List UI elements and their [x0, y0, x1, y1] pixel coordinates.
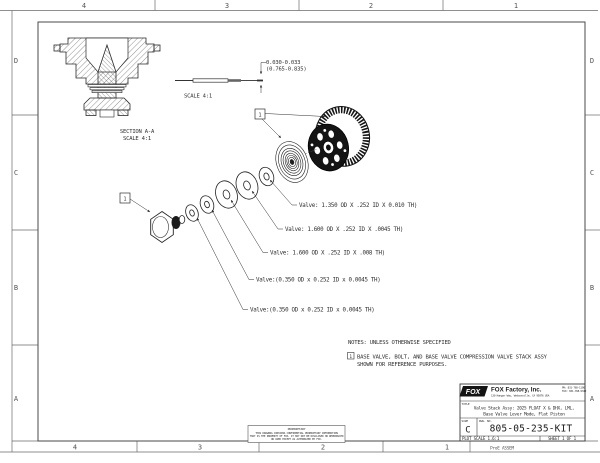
zone-col-bottom-3: 3	[198, 444, 202, 452]
note-1-line-2: SHOWN FOR REFERENCE PURPOSES.	[357, 362, 447, 368]
flag-bolt-number: 1	[123, 197, 126, 203]
needle-scale-label: SCALE 4:1	[184, 94, 212, 100]
sheet-size: C	[465, 426, 470, 436]
tip-dimension-inches: 0.030-0.033	[266, 60, 300, 66]
zone-row-left-d: D	[14, 57, 18, 65]
valve-label-4: Valve:(0.350 OD x 0.252 ID x 0.0045 TH)	[256, 278, 380, 284]
zone-col-top-3: 3	[225, 2, 229, 10]
valve-label-3: Valve: 1.600 OD X .252 ID X .008 TH)	[270, 251, 385, 257]
plot-file-label: ProE ASSEM	[490, 446, 514, 452]
proprietary-box: PROPRIETARY THIS DRAWING CONTAINS CONFID…	[248, 426, 345, 443]
sheet-count: SHEET 1 OF 1	[548, 436, 577, 441]
zone-row-right-d: D	[590, 57, 594, 65]
plot-scale: PLOT SCALE 1.6:1	[462, 436, 500, 441]
drawing-canvas: 4 3 2 1 4 3 2 1 ProE ASSEM D C B A D C B…	[0, 0, 600, 463]
engineering-drawing-sheet: 4 3 2 1 4 3 2 1 ProE ASSEM D C B A D C B…	[0, 0, 600, 463]
zone-row-left-b: B	[14, 284, 18, 292]
drawing-title-line-1: Valve Stack Assy: 2025 FLOAT X & DHX, LM…	[474, 406, 575, 412]
notes-heading: NOTES: UNLESS OTHERWISE SPECIFIED	[348, 340, 451, 346]
section-scale-label: SCALE 4:1	[123, 136, 151, 142]
zone-row-right-c: C	[590, 169, 594, 177]
zone-col-bottom-2: 2	[321, 444, 325, 452]
section-label: SECTION A-A	[120, 129, 155, 135]
company-fax: FAX: 831-768-9342	[562, 389, 587, 393]
zone-col-top-4: 4	[82, 2, 86, 10]
fox-logo-text: FOX	[466, 389, 482, 396]
flag-piston-number: 1	[258, 113, 261, 119]
note-flag-number: 1	[349, 354, 352, 360]
zone-row-left-c: C	[14, 169, 18, 177]
note-1-line-1: BASE VALVE, BOLT, AND BASE VALVE COMPRES…	[357, 355, 548, 361]
zone-col-top-1: 1	[514, 2, 518, 10]
size-field-label: SIZE	[462, 419, 469, 423]
valve-label-5: Valve:(0.350 OD x 0.252 ID x 0.0045 TH)	[250, 308, 374, 314]
proprietary-line-3: OR USED EXCEPT AS AUTHORIZED BY FOX.	[271, 437, 322, 441]
drawing-title-line-2: Base Valve Lever Mode, Flat Piston	[483, 412, 565, 418]
bolt-shaft-end	[179, 216, 185, 224]
title-field-label: TITLE	[462, 402, 470, 406]
zone-col-bottom-1: 1	[445, 444, 449, 452]
needle-tip	[257, 80, 263, 82]
title-block: FOX FOX Factory, Inc. 130 Hangar Way, Wa…	[460, 384, 587, 441]
zone-col-bottom-4: 4	[73, 444, 77, 452]
fox-logo: FOX	[460, 386, 489, 397]
drawing-number: 805-05-235-KIT	[490, 424, 573, 435]
needle-spring-section	[228, 79, 241, 82]
tip-dimension-mm: (0.765-0.835)	[266, 67, 306, 73]
valve-label-1: Valve: 1.350 OD X .252 ID X 0.010 TH)	[299, 203, 417, 209]
needle-shaft	[193, 79, 228, 82]
company-address: 130 Hangar Way, Watsonville, CA 95076 US…	[491, 393, 550, 397]
valve-label-2: Valve: 1.600 OD X .252 ID X .0045 TH)	[285, 227, 403, 233]
zone-row-right-b: B	[590, 284, 594, 292]
dwg-no-field-label: DWG. NO.	[479, 419, 492, 423]
zone-col-top-2: 2	[369, 2, 373, 10]
